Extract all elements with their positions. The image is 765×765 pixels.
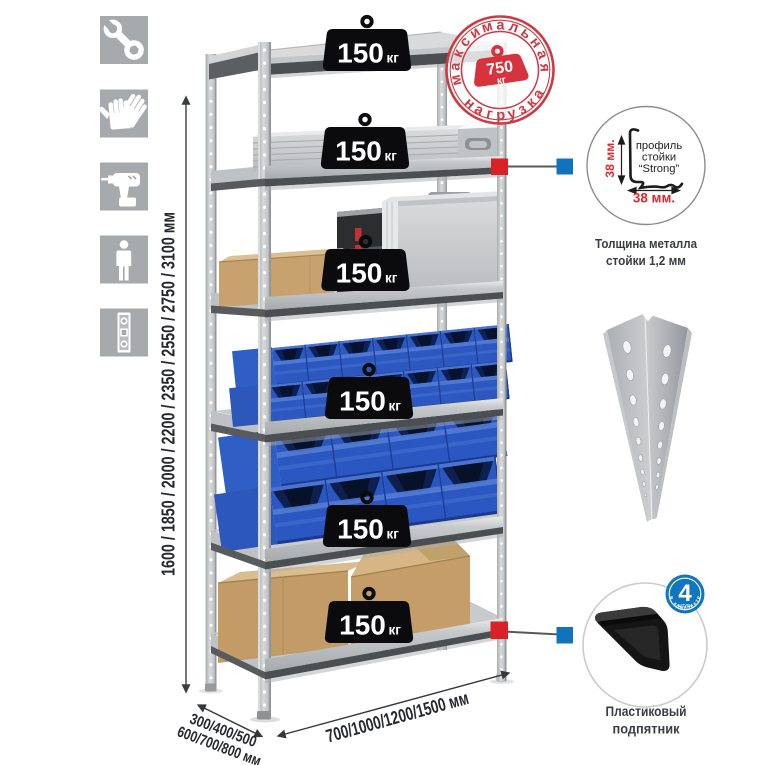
svg-text:Пластиковый: Пластиковый: [606, 704, 687, 719]
svg-text:38 мм.: 38 мм.: [603, 139, 617, 177]
svg-text:стойки: стойки: [642, 152, 676, 164]
svg-text:Толщина металла: Толщина металла: [595, 236, 698, 251]
svg-text:38 мм.: 38 мм.: [633, 191, 675, 206]
svg-text:стойки 1,2 мм: стойки 1,2 мм: [606, 253, 686, 268]
svg-text:подпятник: подпятник: [613, 722, 680, 737]
svg-text:а: а: [496, 17, 505, 33]
svg-text:я: я: [536, 63, 552, 72]
svg-text:“Strong”: “Strong”: [639, 163, 680, 175]
svg-text:кг: кг: [496, 75, 507, 87]
svg-text:р: р: [496, 108, 505, 124]
svg-text:профиль: профиль: [636, 140, 682, 152]
svg-text:1600 / 1850 / 2000 / 2200 / 23: 1600 / 1850 / 2000 / 2200 / 2350 / 2550 …: [159, 212, 179, 576]
